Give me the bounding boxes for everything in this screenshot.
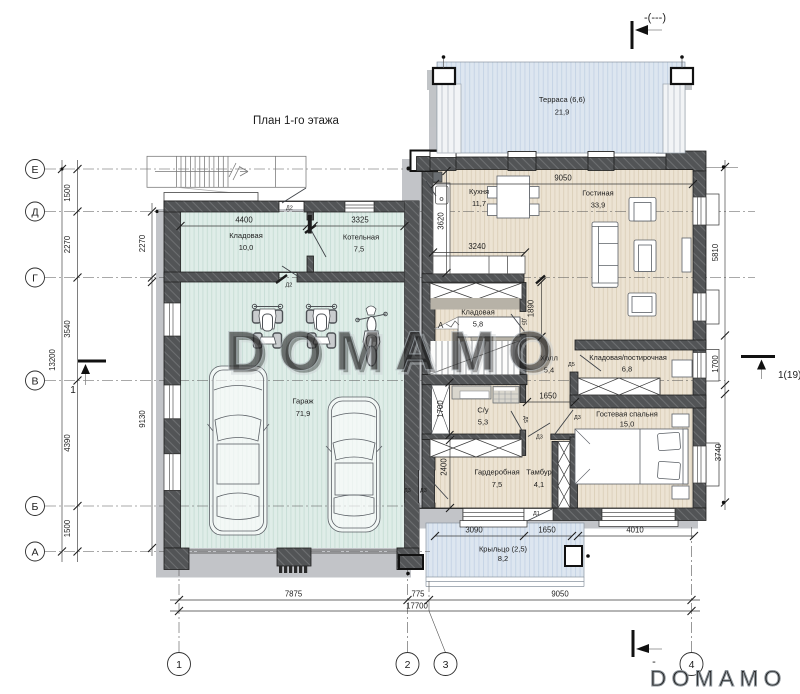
svg-text:2: 2 [405, 659, 411, 671]
svg-text:71,9: 71,9 [296, 409, 311, 418]
svg-text:1890: 1890 [527, 299, 536, 317]
svg-text:3325: 3325 [351, 216, 369, 225]
svg-text:Кладовая/постирочная: Кладовая/постирочная [589, 353, 667, 362]
svg-text:-(---): -(---) [644, 12, 666, 24]
svg-text:5810: 5810 [711, 243, 720, 261]
svg-text:3540: 3540 [63, 320, 72, 338]
svg-text:2400: 2400 [440, 458, 449, 476]
svg-text:Д1: Д1 [533, 511, 540, 517]
svg-text:В: В [31, 375, 38, 387]
svg-text:4,1: 4,1 [534, 480, 544, 489]
svg-text:Д: Д [31, 206, 38, 218]
svg-text:Котельная: Котельная [343, 233, 379, 242]
svg-text:Гостевая спальня: Гостевая спальня [596, 410, 658, 419]
svg-text:Д5: Д5 [568, 362, 575, 368]
svg-text:11,7: 11,7 [472, 199, 486, 208]
svg-text:8,2: 8,2 [498, 554, 508, 563]
svg-text:Д2: Д2 [286, 206, 293, 212]
svg-text:7,5: 7,5 [492, 480, 502, 489]
svg-text:3620: 3620 [437, 212, 446, 230]
svg-text:7,5: 7,5 [354, 245, 364, 254]
svg-text:15,0: 15,0 [620, 420, 635, 429]
svg-text:Гардеробная: Гардеробная [474, 468, 519, 477]
svg-text:1650: 1650 [538, 526, 556, 535]
svg-text:Д3: Д3 [574, 415, 581, 421]
svg-text:DOMAMO: DOMAMO [650, 666, 787, 691]
svg-text:Б: Б [32, 501, 39, 513]
svg-text:С/у: С/у [477, 406, 489, 415]
svg-text:1700: 1700 [711, 355, 720, 373]
svg-text:4400: 4400 [235, 216, 253, 225]
svg-text:1(19): 1(19) [778, 370, 800, 381]
svg-text:Г: Г [32, 272, 38, 284]
svg-text:2270: 2270 [138, 234, 147, 252]
svg-text:Гараж: Гараж [292, 397, 313, 406]
svg-text:1500: 1500 [63, 184, 72, 202]
svg-text:33,9: 33,9 [591, 201, 606, 210]
svg-text:А: А [31, 546, 38, 558]
svg-text:1650: 1650 [539, 392, 557, 401]
svg-text:13200: 13200 [48, 348, 57, 370]
svg-text:1500: 1500 [63, 519, 72, 537]
svg-text:3: 3 [443, 659, 449, 671]
svg-text:План 1-го этажа: План 1-го этажа [253, 115, 340, 127]
svg-text:Д5: Д5 [522, 416, 528, 423]
svg-text:9130: 9130 [138, 410, 147, 428]
svg-text:1: 1 [176, 659, 182, 671]
svg-text:17700: 17700 [406, 602, 428, 611]
svg-text:775: 775 [411, 590, 425, 599]
svg-text:4010: 4010 [626, 526, 644, 535]
svg-text:4390: 4390 [63, 434, 72, 452]
svg-text:7875: 7875 [285, 590, 303, 599]
svg-text:1700: 1700 [436, 400, 445, 418]
svg-text:Д2: Д2 [286, 283, 293, 289]
svg-text:Крыльцо (2,5): Крыльцо (2,5) [479, 545, 528, 554]
svg-text:2270: 2270 [63, 235, 72, 253]
svg-text:1: 1 [70, 385, 76, 396]
svg-text:Кладовая: Кладовая [461, 308, 495, 317]
svg-text:DOMAMO: DOMAMO [225, 319, 564, 382]
svg-text:9050: 9050 [554, 174, 572, 183]
svg-text:Д3: Д3 [404, 488, 411, 494]
svg-text:6,8: 6,8 [622, 365, 632, 374]
svg-text:3090: 3090 [465, 526, 483, 535]
svg-text:Кладовая: Кладовая [229, 231, 263, 240]
svg-text:5,3: 5,3 [478, 418, 488, 427]
svg-text:3240: 3240 [468, 242, 486, 251]
svg-text:Терраса (6,6): Терраса (6,6) [539, 95, 586, 104]
svg-text:Гостиная: Гостиная [582, 189, 613, 198]
svg-text:Е: Е [31, 164, 38, 176]
svg-text:Тамбур: Тамбур [526, 468, 551, 477]
svg-text:Д3: Д3 [420, 488, 427, 494]
svg-text:9050: 9050 [551, 590, 569, 599]
svg-text:21,9: 21,9 [555, 108, 570, 117]
svg-text:Д3: Д3 [536, 435, 543, 441]
svg-text:10,0: 10,0 [239, 243, 254, 252]
svg-text:Кухня: Кухня [469, 187, 489, 196]
svg-text:3740: 3740 [714, 443, 723, 461]
